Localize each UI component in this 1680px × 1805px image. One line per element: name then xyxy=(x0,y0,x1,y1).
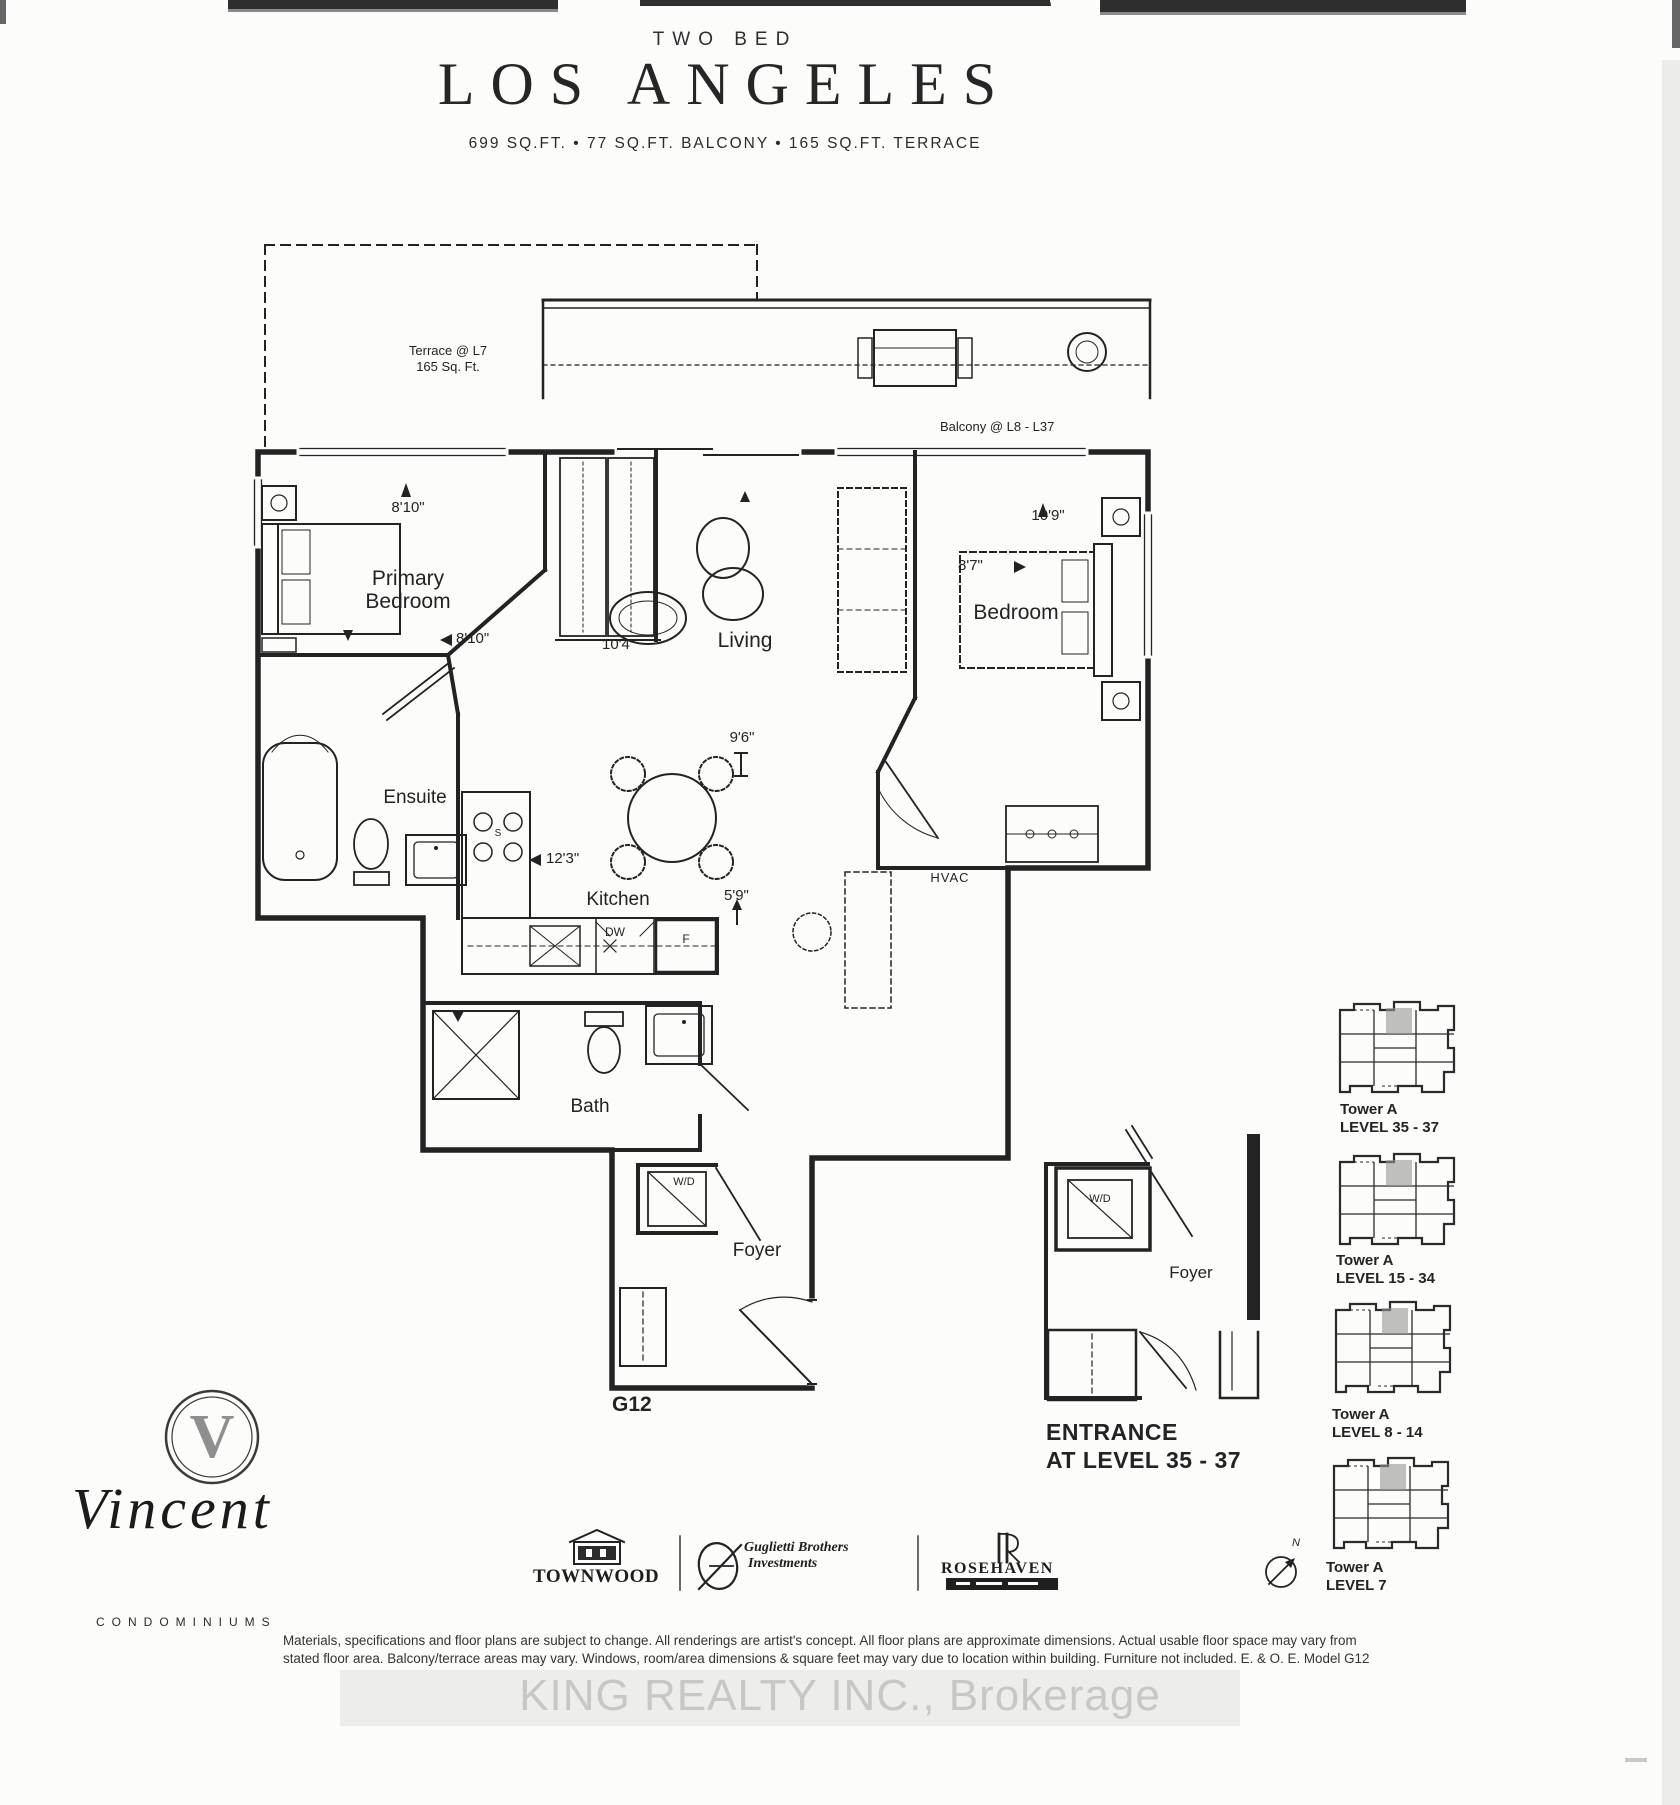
keyplan-level-35-37 xyxy=(1340,1002,1454,1092)
vincent-wordmark: Vincent xyxy=(72,1478,273,1541)
room-label-kitchen: Kitchen xyxy=(586,890,649,911)
dining-set xyxy=(611,757,733,879)
ensuite-fixtures xyxy=(263,735,466,885)
guglietti-wordmark-line1: Guglietti Brothers xyxy=(744,1540,849,1555)
dim-primary-depth: 8'10" xyxy=(456,631,489,647)
entrance-washer-dryer-label: W/D xyxy=(1089,1194,1110,1206)
terrace-label-line1: Terrace @ L7 xyxy=(409,344,487,358)
keyplan-3-tower: Tower A xyxy=(1332,1407,1390,1423)
kitchen-counters xyxy=(462,792,718,974)
dim-bedroom-width: 10'9" xyxy=(1031,508,1064,524)
room-label-living: Living xyxy=(718,630,773,653)
entrance-caption-line2: AT LEVEL 35 - 37 xyxy=(1046,1448,1241,1473)
balcony-furniture xyxy=(858,330,1106,386)
unit-code: G12 xyxy=(612,1394,652,1417)
label-stove: S xyxy=(495,829,502,840)
room-label-hvac: HVAC xyxy=(930,871,969,885)
door-swings xyxy=(383,662,938,1384)
floorplan-page: TWO BED LOS ANGELES 699 SQ.FT. • 77 SQ.F… xyxy=(0,0,1680,1805)
brokerage-watermark: KING REALTY INC., Brokerage xyxy=(519,1672,1161,1720)
room-label-bedroom: Bedroom xyxy=(973,602,1058,625)
scan-edge xyxy=(1662,60,1680,1805)
label-fridge: F xyxy=(682,933,689,946)
top-decorative-border xyxy=(228,0,1466,15)
compass-icon xyxy=(1266,1557,1296,1587)
keyplan-level-7 xyxy=(1334,1458,1448,1548)
dim-kitchen-length: 12'3" xyxy=(546,851,579,867)
keyplan-4-tower: Tower A xyxy=(1326,1560,1384,1576)
keyplan-2-level: LEVEL 15 - 34 xyxy=(1336,1271,1435,1287)
balcony-outline xyxy=(543,300,1150,398)
vincent-logo-letter: V xyxy=(190,1404,235,1471)
dim-bedroom-depth: 8'7" xyxy=(958,558,983,574)
scan-mark xyxy=(1672,0,1680,48)
keyplan-1-tower: Tower A xyxy=(1340,1102,1398,1118)
keyplan-4-level: LEVEL 7 xyxy=(1326,1578,1387,1594)
entrance-diagram xyxy=(1046,1126,1260,1400)
disclaimer-line1: Materials, specifications and floor plan… xyxy=(283,1634,1357,1648)
dim-primary-width: 8'10" xyxy=(391,500,424,516)
room-label-foyer: Foyer xyxy=(733,1241,782,1262)
dim-living-depth: 9'6" xyxy=(730,730,755,746)
townwood-wordmark: TOWNWOOD xyxy=(533,1567,659,1588)
desk-nook xyxy=(793,872,891,1008)
page-title: LOS ANGELES xyxy=(438,52,1012,117)
guglietti-logo-icon xyxy=(695,1540,742,1593)
keyplan-3-level: LEVEL 8 - 14 xyxy=(1332,1425,1423,1441)
unit-specs: 699 SQ.FT. • 77 SQ.FT. BALCONY • 165 SQ.… xyxy=(469,136,982,153)
keyplan-1-level: LEVEL 35 - 37 xyxy=(1340,1120,1439,1136)
room-label-primary-bedroom: Primary Bedroom xyxy=(343,568,473,613)
disclaimer-line2: stated floor area. Balcony/terrace areas… xyxy=(283,1652,1369,1666)
dim-kitchen-depth: 5'9" xyxy=(724,888,749,904)
ke yplan-2-tower: Tower A xyxy=(1336,1253,1394,1269)
rosehaven-wordmark: ROSEHAVEN xyxy=(941,1560,1054,1577)
plan-category: TWO BED xyxy=(653,30,798,51)
label-washer-dryer: W/D xyxy=(673,1177,694,1189)
terrace-outline xyxy=(265,245,757,450)
scan-mark xyxy=(1625,1758,1647,1762)
bath-fixtures xyxy=(433,1006,712,1099)
balcony-label: Balcony @ L8 - L37 xyxy=(940,420,1054,434)
scan-mark xyxy=(0,0,6,24)
dim-living-width: 10'4" xyxy=(602,637,635,653)
entrance-caption-line1: ENTRANCE xyxy=(1046,1420,1178,1445)
keyplan-level-8-14 xyxy=(1336,1302,1450,1392)
room-label-ensuite: Ensuite xyxy=(383,788,446,809)
guglietti-wordmark-line2: Investments xyxy=(748,1556,817,1571)
townwood-logo-icon xyxy=(570,1530,624,1564)
compass-north-label: N xyxy=(1292,1538,1300,1550)
terrace-label-line2: 165 Sq. Ft. xyxy=(416,360,480,374)
keyplan-level-15-34 xyxy=(1340,1154,1454,1244)
room-label-bath: Bath xyxy=(570,1097,609,1118)
dimension-arrows xyxy=(343,483,1048,924)
vincent-subtitle: CONDOMINIUMS xyxy=(96,1616,277,1629)
label-dishwasher: DW xyxy=(605,926,625,939)
entrance-foyer-label: Foyer xyxy=(1169,1264,1212,1282)
